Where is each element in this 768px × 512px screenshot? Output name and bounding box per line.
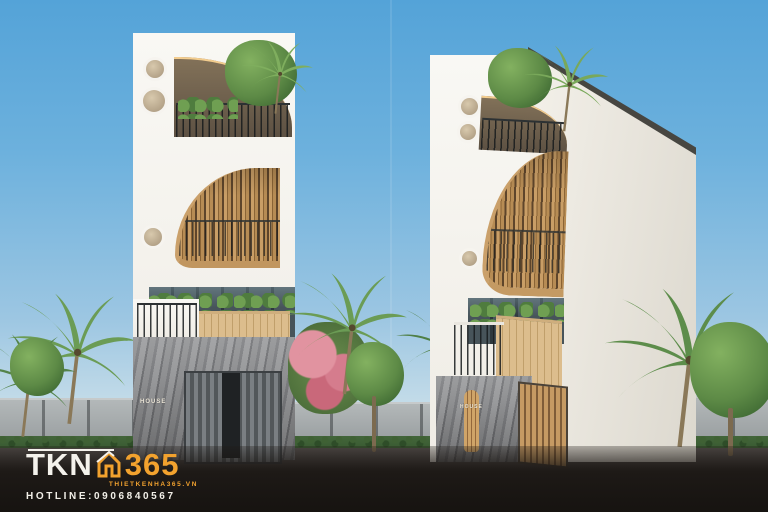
tkn365-logo: TKN 365 THIETKENHA365.VN HOTLINE:0906840… [26,450,198,502]
logo-text-365: 365 [125,452,180,478]
footer-watermark-bar: TKN 365 THIETKENHA365.VN HOTLINE:0906840… [0,446,768,512]
rooftop-palm [238,38,316,116]
logo-hotline-text: HOTLINE:0906840567 [26,491,198,502]
house-logo-icon [96,450,122,478]
door-wood-capsule [464,390,479,452]
porthole-window [460,124,476,140]
terrace-plants [178,97,238,119]
architecture-render-image: HOUSE HOUSE [0,0,768,512]
rooftop-palm [520,42,612,134]
balcony-railing [137,303,197,339]
house-sign: HOUSE [140,399,166,405]
arch-balcony-railing [486,229,565,274]
porthole-window [143,90,165,112]
porthole-window [462,251,477,266]
logo-roofline [28,449,114,451]
logo-text-tkn: TKN [26,452,93,478]
house-sign: HOUSE [460,404,483,410]
logo-domain-text: THIETKENHA365.VN [26,481,198,488]
green-fern [10,338,64,396]
green-tree [690,322,768,418]
porthole-window [146,60,164,78]
arch-balcony-railing [179,220,280,256]
porthole-window [144,228,162,246]
balcony-railing [454,322,504,375]
tree-trunk [372,396,376,452]
porthole-window [461,98,478,115]
